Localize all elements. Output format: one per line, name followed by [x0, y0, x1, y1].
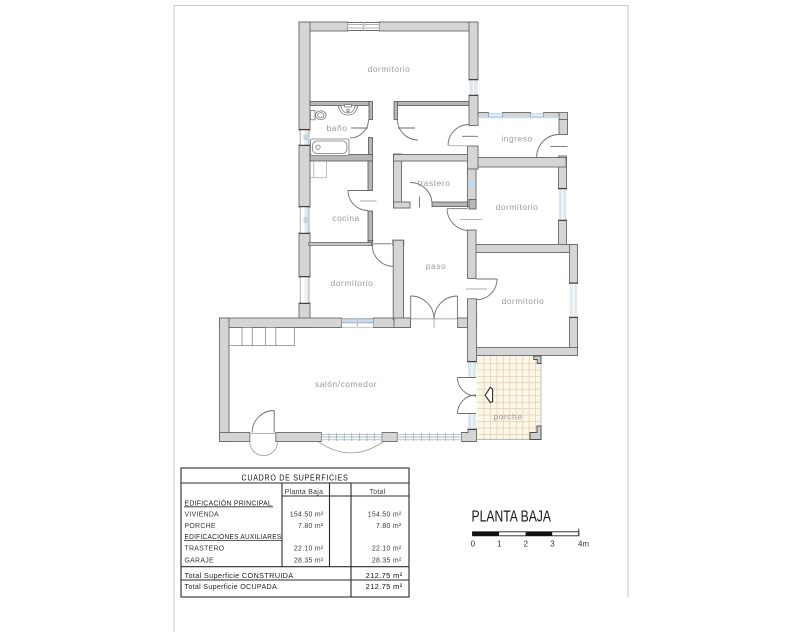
svg-text:porche: porche — [494, 412, 523, 422]
svg-text:22.10 m²: 22.10 m² — [372, 546, 402, 553]
svg-text:212.75 m²: 212.75 m² — [366, 571, 403, 580]
svg-text:salón/comedor: salón/comedor — [315, 379, 377, 389]
svg-text:3: 3 — [550, 540, 555, 549]
svg-text:22.10 m²: 22.10 m² — [294, 546, 324, 553]
svg-text:Total: Total — [369, 489, 385, 496]
svg-text:cocina: cocina — [332, 213, 360, 223]
svg-text:212.75 m²: 212.75 m² — [366, 582, 403, 591]
svg-text:7.80 m²: 7.80 m² — [376, 523, 402, 530]
svg-text:154.50 m²: 154.50 m² — [368, 512, 402, 519]
svg-text:PLANTA BAJA: PLANTA BAJA — [472, 509, 552, 526]
svg-text:Total Superficie OCUPADA: Total Superficie OCUPADA — [185, 582, 278, 591]
svg-text:dormitorio: dormitorio — [331, 278, 374, 288]
svg-text:PORCHE: PORCHE — [185, 523, 216, 530]
svg-text:Planta Baja: Planta Baja — [285, 489, 324, 496]
svg-text:dormitorio: dormitorio — [496, 202, 539, 212]
svg-text:0: 0 — [471, 540, 476, 549]
svg-text:CUADRO DE SUPERFICIES: CUADRO DE SUPERFICIES — [242, 473, 349, 482]
svg-text:GARAJE: GARAJE — [185, 557, 214, 564]
svg-text:EDIFICACIÓN PRINCIPAL: EDIFICACIÓN PRINCIPAL — [185, 498, 273, 507]
svg-text:28.35 m²: 28.35 m² — [294, 557, 324, 564]
svg-text:Total Superficie CONSTRUIDA: Total Superficie CONSTRUIDA — [185, 571, 294, 580]
svg-text:EDIFICACIONES AUXILIARES: EDIFICACIONES AUXILIARES — [185, 534, 282, 541]
svg-text:4m: 4m — [578, 540, 589, 549]
svg-text:TRASTERO: TRASTERO — [185, 546, 225, 553]
svg-text:1: 1 — [497, 540, 502, 549]
svg-text:dormitorio: dormitorio — [368, 64, 411, 74]
svg-text:28.35 m²: 28.35 m² — [372, 557, 402, 564]
svg-text:2: 2 — [524, 540, 529, 549]
svg-text:154.50 m²: 154.50 m² — [290, 512, 324, 519]
svg-text:paso: paso — [426, 261, 446, 271]
svg-text:dormitorio: dormitorio — [502, 296, 545, 306]
svg-text:baño: baño — [327, 123, 348, 133]
svg-text:ingreso: ingreso — [501, 134, 532, 144]
svg-text:trastero: trastero — [418, 178, 451, 188]
svg-text:VIVIENDA: VIVIENDA — [185, 512, 220, 519]
svg-text:7.80 m²: 7.80 m² — [298, 523, 324, 530]
